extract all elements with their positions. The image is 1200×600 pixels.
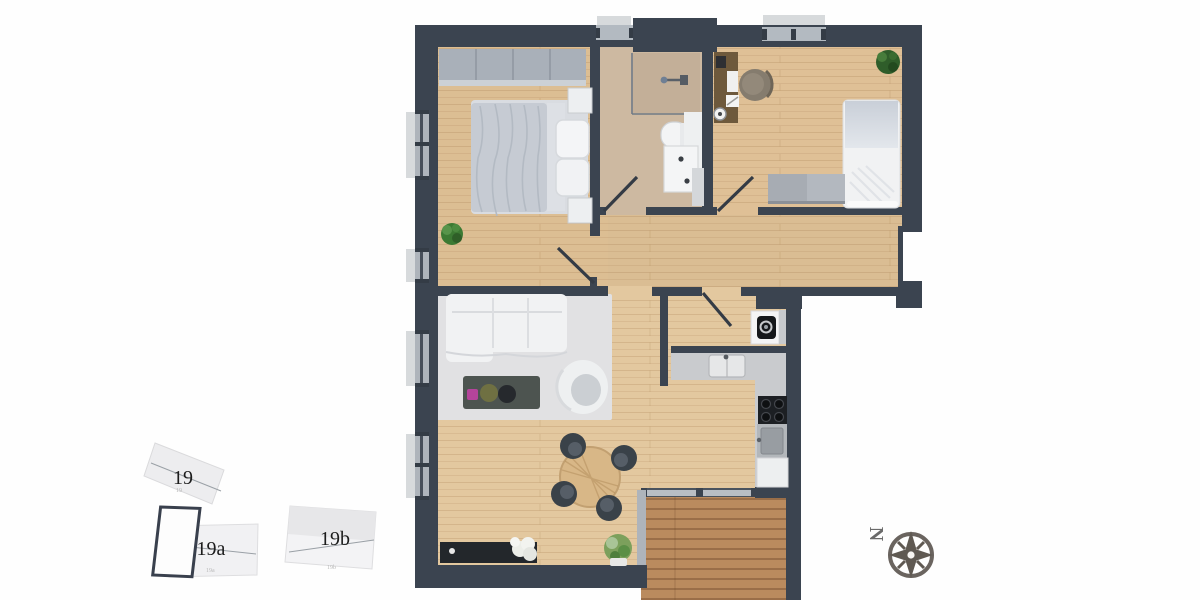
svg-text:N: N (865, 527, 887, 542)
svg-text:19: 19 (173, 467, 193, 489)
svg-text:19: 19 (176, 488, 182, 494)
svg-text:19b: 19b (320, 528, 350, 550)
svg-text:19a: 19a (206, 568, 215, 574)
svg-text:19b: 19b (327, 565, 336, 571)
svg-text:19a: 19a (197, 538, 226, 560)
